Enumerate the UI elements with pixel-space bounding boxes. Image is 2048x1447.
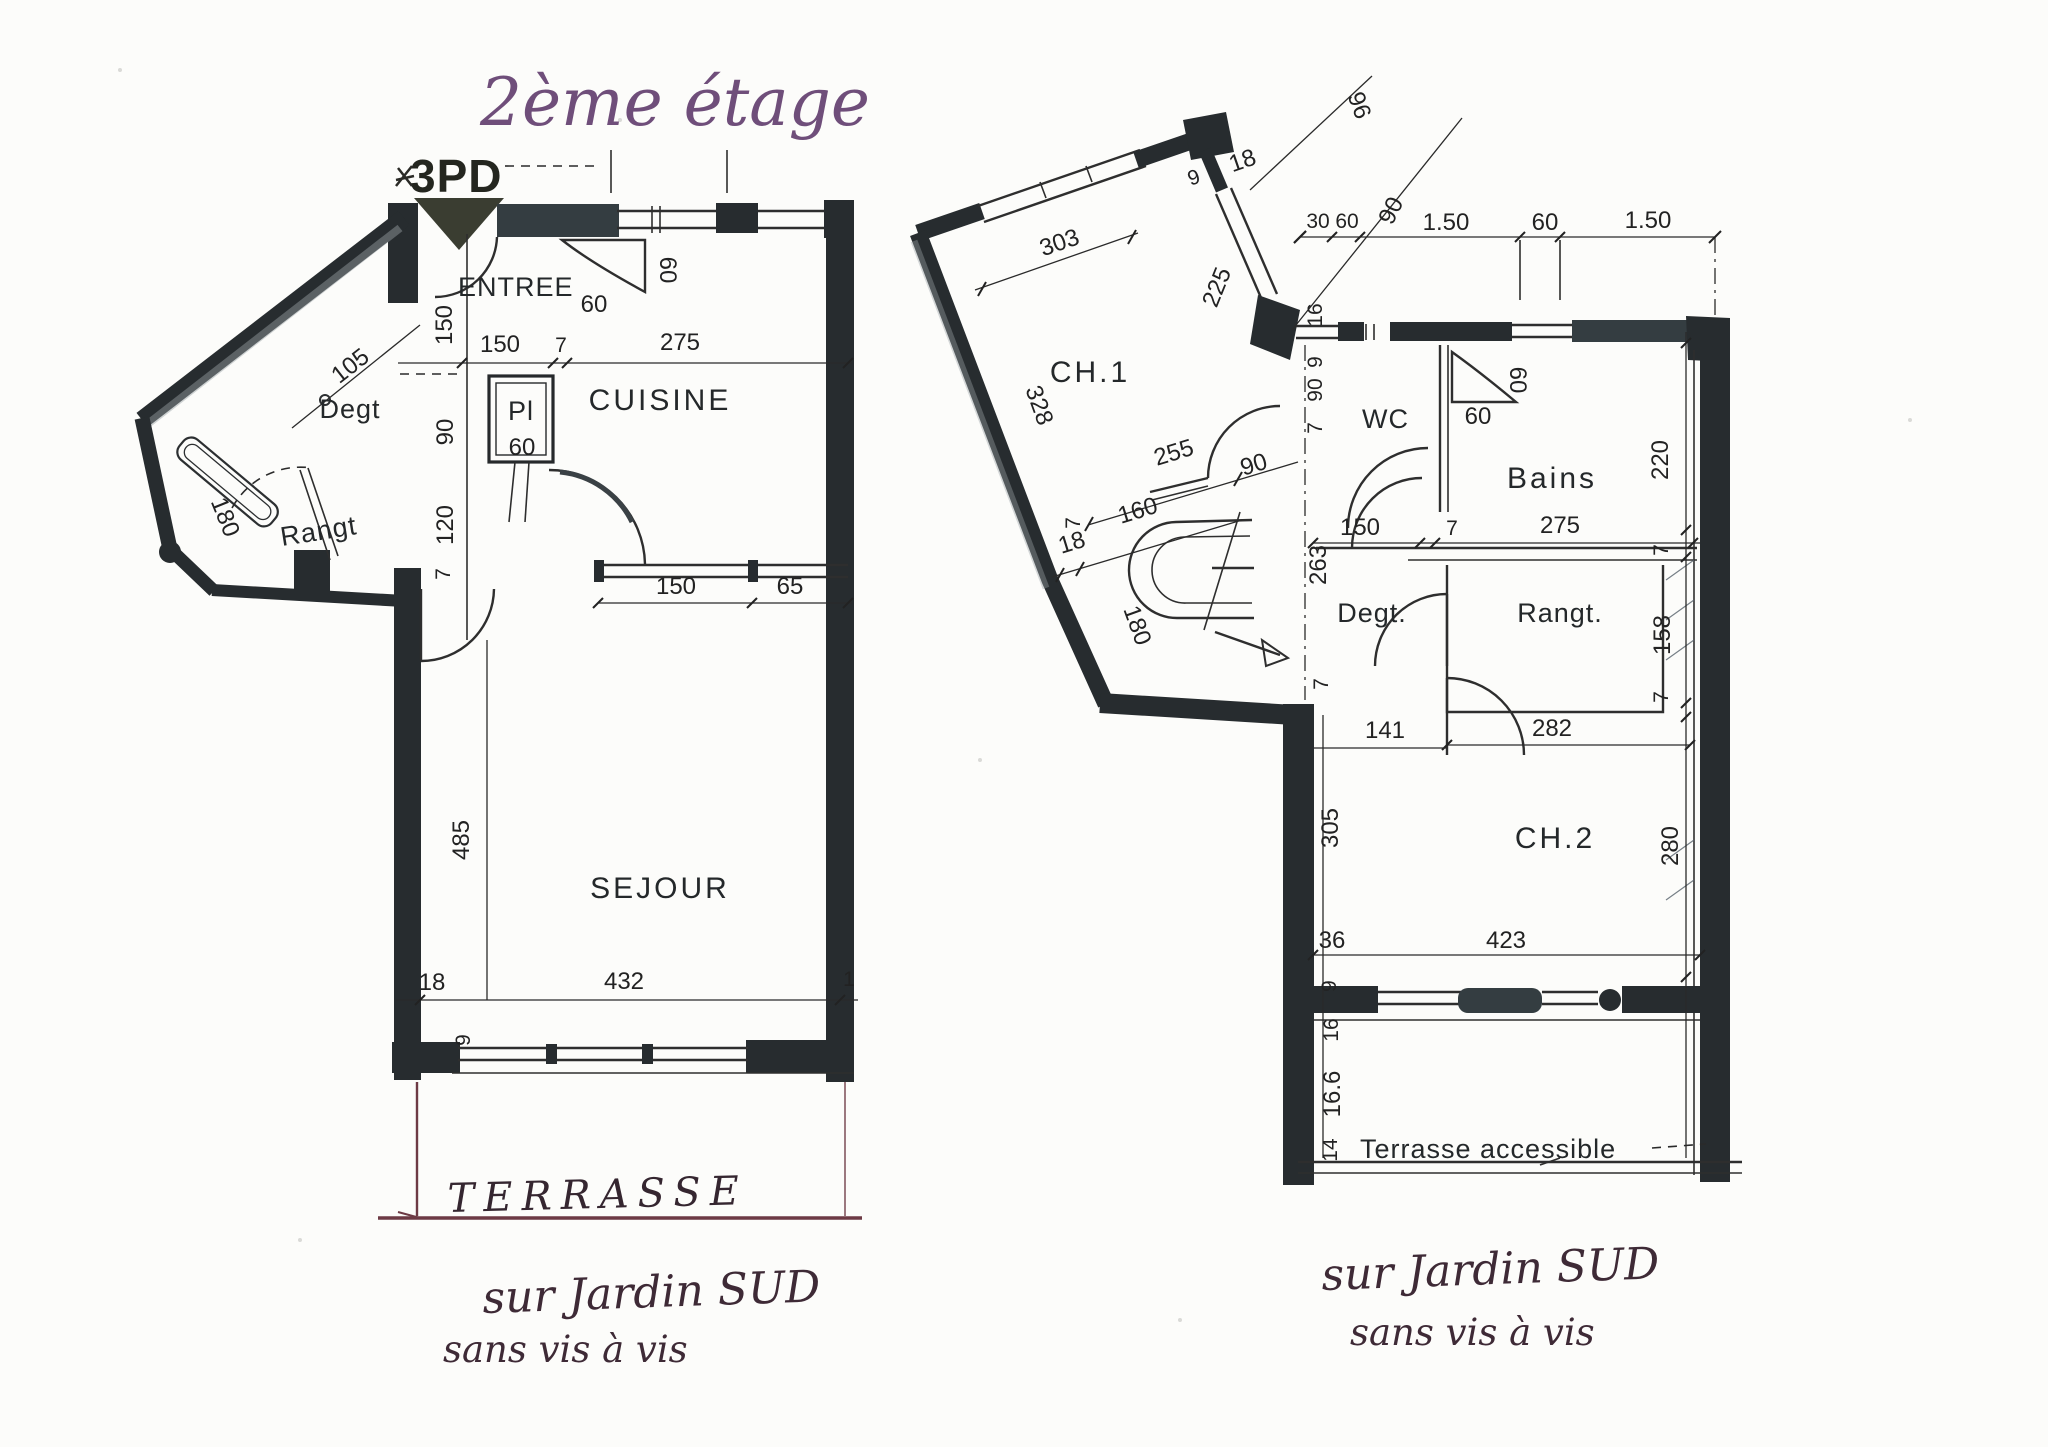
dim-160: 160 bbox=[1115, 492, 1161, 530]
dim-16v: 16 bbox=[1304, 303, 1327, 326]
dim-9v: 9 bbox=[1304, 356, 1327, 368]
dim-280: 280 bbox=[1657, 826, 1684, 866]
dim-90diag: 90 bbox=[1373, 193, 1409, 229]
dim-120: 120 bbox=[432, 505, 459, 545]
dim-485: 485 bbox=[448, 820, 475, 860]
dim-90: 90 bbox=[432, 419, 459, 446]
scan-artifacts bbox=[118, 68, 1912, 1322]
dim-60-splay-h: 60 bbox=[581, 291, 608, 318]
dim-282: 282 bbox=[1532, 715, 1572, 742]
dim-18: 18 bbox=[419, 969, 446, 996]
dim-30: 30 bbox=[1306, 210, 1329, 233]
dim-158: 158 bbox=[1649, 615, 1676, 655]
room-cuisine: CUISINE bbox=[589, 384, 732, 417]
floor-plan-drawing: 2ème étage 3PD bbox=[0, 0, 2048, 1447]
dim-7e: 7 bbox=[1650, 691, 1673, 703]
room-ch2: CH.2 bbox=[1515, 822, 1595, 855]
sejour-door-arc bbox=[421, 589, 494, 661]
room-sejour: SEJOUR bbox=[590, 872, 730, 905]
room-rangt: Rangt bbox=[278, 510, 359, 552]
dim-96: 96 bbox=[1342, 88, 1377, 122]
note-a-line1: sur Jardin SUD bbox=[482, 1261, 821, 1324]
degt-door-arc bbox=[1447, 678, 1524, 755]
room-wc: WC bbox=[1362, 404, 1409, 434]
room-degt-b: Degt. bbox=[1337, 598, 1407, 628]
note-b-line2: sans vis à vis bbox=[1350, 1311, 1595, 1354]
dim-255: 255 bbox=[1151, 434, 1197, 472]
stairs bbox=[1129, 512, 1288, 666]
dim-7v: 7 bbox=[1304, 422, 1327, 434]
dim-150: 150 bbox=[480, 331, 520, 358]
dim-150h: 150 bbox=[1340, 514, 1380, 541]
terrasse-label: TERRASSE bbox=[447, 1168, 748, 1222]
scanned-floor-plan-page: 2ème étage 3PD bbox=[0, 0, 2048, 1447]
dim-16b: 16 bbox=[1320, 1018, 1343, 1041]
entry-arrow-icon bbox=[414, 198, 504, 250]
dim-7r: 7 bbox=[1650, 544, 1673, 556]
dim-141: 141 bbox=[1365, 717, 1405, 744]
dim-275: 275 bbox=[660, 329, 700, 356]
room-rangt-b: Rangt. bbox=[1517, 598, 1603, 628]
plan-a-terrace: TERRASSE bbox=[378, 1082, 862, 1222]
dim-60-splay-v: 60 bbox=[654, 257, 681, 284]
room-entree: ENTREE bbox=[458, 272, 574, 302]
note-a-line2: sans vis à vis bbox=[443, 1328, 688, 1371]
dim-36: 36 bbox=[1319, 927, 1346, 954]
dim-9b: 9 bbox=[1318, 980, 1341, 992]
page-title: 2ème étage bbox=[479, 64, 870, 141]
dim-150b: 1.50 bbox=[1625, 207, 1672, 234]
dim-423: 423 bbox=[1486, 927, 1526, 954]
dim-90c: 90 bbox=[1237, 448, 1270, 482]
dim-60t: 60 bbox=[1335, 210, 1358, 233]
splay-window bbox=[562, 240, 645, 292]
dim-60-splay-h-b: 60 bbox=[1465, 403, 1492, 430]
dim-60-pl: 60 bbox=[509, 434, 536, 461]
dim-328: 328 bbox=[1020, 382, 1059, 429]
room-degt: Degt bbox=[319, 394, 380, 424]
dim-9a: 9 bbox=[1185, 165, 1204, 191]
dim-432: 432 bbox=[604, 968, 644, 995]
plan-a-type-marking: 3PD bbox=[410, 150, 502, 202]
plan-a: 3PD bbox=[140, 150, 862, 1371]
dim-150-entry: 150 bbox=[431, 305, 458, 345]
dim-305: 305 bbox=[1317, 808, 1344, 848]
dim-275b: 275 bbox=[1540, 512, 1580, 539]
dim-90v: 90 bbox=[1304, 378, 1327, 401]
dim-60-splay-v-b: 60 bbox=[1504, 367, 1531, 394]
title-number: 2ème étage bbox=[479, 64, 870, 141]
terrace-dash bbox=[1652, 1144, 1706, 1148]
dim-220: 220 bbox=[1647, 440, 1674, 480]
dim-18c: 18 bbox=[1055, 526, 1088, 560]
dim-7h: 7 bbox=[1446, 517, 1458, 540]
dim-60b: 60 bbox=[1532, 209, 1559, 236]
dim-7d: 7 bbox=[1310, 678, 1333, 690]
room-bains: Bains bbox=[1507, 462, 1597, 495]
dim-16-6: 16.6 bbox=[1319, 1071, 1346, 1118]
dim-180: 180 bbox=[205, 494, 245, 541]
terrace-accessible-label: Terrasse accessible bbox=[1360, 1134, 1616, 1164]
dim-14: 14 bbox=[1319, 1138, 1342, 1162]
dim-65: 65 bbox=[777, 573, 804, 600]
room-ch1: CH.1 bbox=[1050, 356, 1130, 389]
dim-150-door: 150 bbox=[656, 573, 696, 600]
dim-7c: 7 bbox=[1062, 517, 1085, 529]
plan-b: 303 9 18 96 225 30 60 90 1.50 60 1.50 16… bbox=[914, 76, 1742, 1354]
dim-263: 263 bbox=[1305, 545, 1332, 585]
dim-303: 303 bbox=[1036, 224, 1083, 263]
dim-7b: 7 bbox=[432, 568, 455, 580]
dim-9: 9 bbox=[452, 1034, 475, 1046]
dim-150a: 1.50 bbox=[1423, 209, 1470, 236]
dim-105: 105 bbox=[326, 343, 374, 389]
dim-1: 1 bbox=[843, 968, 855, 991]
dim-7: 7 bbox=[555, 334, 567, 357]
note-b-line1: sur Jardin SUD bbox=[1321, 1238, 1660, 1301]
room-pl: Pl bbox=[508, 396, 534, 426]
dim-225: 225 bbox=[1197, 264, 1237, 311]
